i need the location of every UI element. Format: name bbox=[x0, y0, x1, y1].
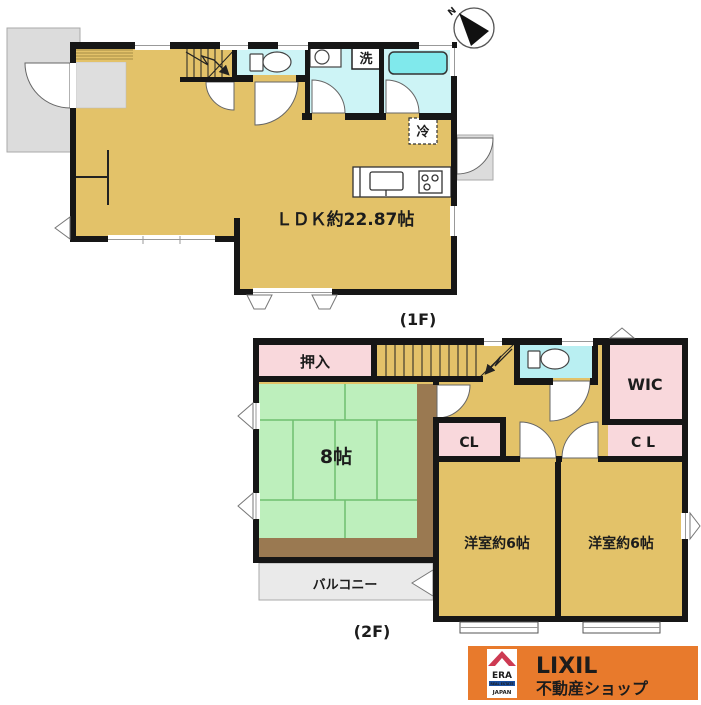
kitchen-counter bbox=[353, 167, 451, 197]
bedroom-left-label: 洋室約6帖 bbox=[464, 535, 530, 552]
shop-name: 不動産ショップ bbox=[536, 679, 649, 698]
laundry-label: 洗 bbox=[359, 51, 372, 67]
floor-1f: ＬＤＫ約22.87帖 洗 冷 (1F) bbox=[7, 28, 493, 329]
kitchen-sink-icon bbox=[370, 172, 403, 190]
genkan-floor bbox=[76, 62, 126, 108]
floorplan-drawing: ＬＤＫ約22.87帖 洗 冷 (1F) N bbox=[0, 0, 701, 705]
tatami-label: 8帖 bbox=[320, 445, 352, 468]
closet-left-label: CL bbox=[459, 435, 478, 451]
bedroom-right-label: 洋室約6帖 bbox=[588, 535, 654, 552]
toilet-icon-2f bbox=[528, 349, 569, 369]
ldk-label: ＬＤＫ約22.87帖 bbox=[276, 209, 415, 230]
era-tagline: REAL ESTATE bbox=[490, 682, 513, 686]
floor2-label: (2F) bbox=[354, 622, 391, 641]
oshiire-label: 押入 bbox=[300, 353, 330, 371]
toilet-icon-1f bbox=[250, 52, 291, 72]
company-name: LIXIL bbox=[536, 654, 597, 679]
floorplan-page: ＬＤＫ約22.87帖 洗 冷 (1F) N bbox=[0, 0, 701, 705]
vanity-sink-icon bbox=[310, 47, 341, 67]
closet-right-label: C L bbox=[631, 435, 655, 451]
floor-2f: 押入 8帖 WIC CL C L 洋室約6帖 洋室約6帖 バルコニー (2F) bbox=[238, 328, 700, 641]
genkan-step-stripes bbox=[76, 47, 133, 62]
refrigerator-label: 冷 bbox=[416, 124, 429, 140]
balcony-label: バルコニー bbox=[313, 578, 378, 593]
north-label: N bbox=[447, 6, 459, 19]
compass: N bbox=[447, 6, 494, 48]
floor1-label: (1F) bbox=[400, 310, 437, 329]
bathtub-icon bbox=[389, 52, 447, 74]
wic-label: WIC bbox=[627, 375, 662, 394]
era-logo: ERA REAL ESTATE JAPAN bbox=[487, 649, 517, 698]
stairs-1f bbox=[180, 47, 237, 80]
stove-icon bbox=[419, 171, 442, 193]
era-logo-text: ERA bbox=[492, 671, 512, 681]
stairs-2f bbox=[377, 344, 514, 378]
brand-banner: ERA REAL ESTATE JAPAN LIXIL 不動産ショップ bbox=[468, 646, 698, 700]
era-country: JAPAN bbox=[492, 690, 512, 696]
